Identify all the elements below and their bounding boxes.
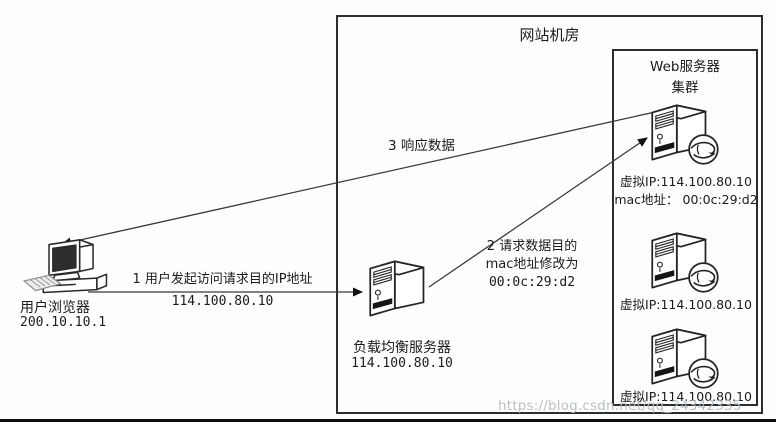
flow-step2-line2: mac地址修改为	[468, 256, 596, 274]
flow-step2-label: 2 请求数据目的 mac地址修改为 00:0c:29:d2	[468, 238, 596, 293]
user-computer-icon	[22, 236, 122, 303]
lvs-dr-diagram: 网站机房 Web服务器 集群 用户浏览器 200.10.10.1 负载均衡服务器…	[0, 0, 776, 426]
web-server1-mac: mac地址： 00:0c:29:d2	[612, 189, 760, 208]
load-balancer-label: 负载均衡服务器	[322, 337, 482, 357]
web-cluster-title: Web服务器 集群	[612, 57, 758, 99]
flow-step1-ip: 114.100.80.10	[120, 294, 325, 309]
load-balancer-server-icon	[360, 250, 446, 326]
web-cluster-title-line1: Web服务器	[612, 57, 758, 78]
web-server-icon	[642, 94, 728, 170]
globe-icon	[689, 359, 718, 388]
globe-icon	[689, 263, 718, 292]
user-client-label: 用户浏览器	[20, 297, 90, 317]
flow-step3-label: 3 响应数据	[388, 134, 455, 154]
csdn-watermark: https://blog.csdn.net/qq_24342335	[498, 398, 776, 414]
flow-step2-line1: 2 请求数据目的	[468, 238, 596, 256]
globe-icon	[689, 135, 718, 164]
web-server-icon	[642, 318, 728, 394]
web-server-icon	[642, 222, 728, 298]
datacenter-title: 网站机房	[336, 24, 763, 45]
load-balancer-ip: 114.100.80.10	[322, 356, 482, 371]
bottom-divider	[0, 419, 776, 422]
web-cluster-title-line2: 集群	[612, 78, 758, 99]
web-server1-virtual-ip: 虚拟IP:114.100.80.10	[612, 171, 760, 190]
user-client-ip: 200.10.10.1	[20, 315, 106, 330]
web-server2-virtual-ip: 虚拟IP:114.100.80.10	[612, 294, 760, 313]
flow-step1-label: 1 用户发起访问请求目的IP地址	[120, 268, 325, 287]
flow-step2-mac: 00:0c:29:d2	[468, 274, 596, 292]
